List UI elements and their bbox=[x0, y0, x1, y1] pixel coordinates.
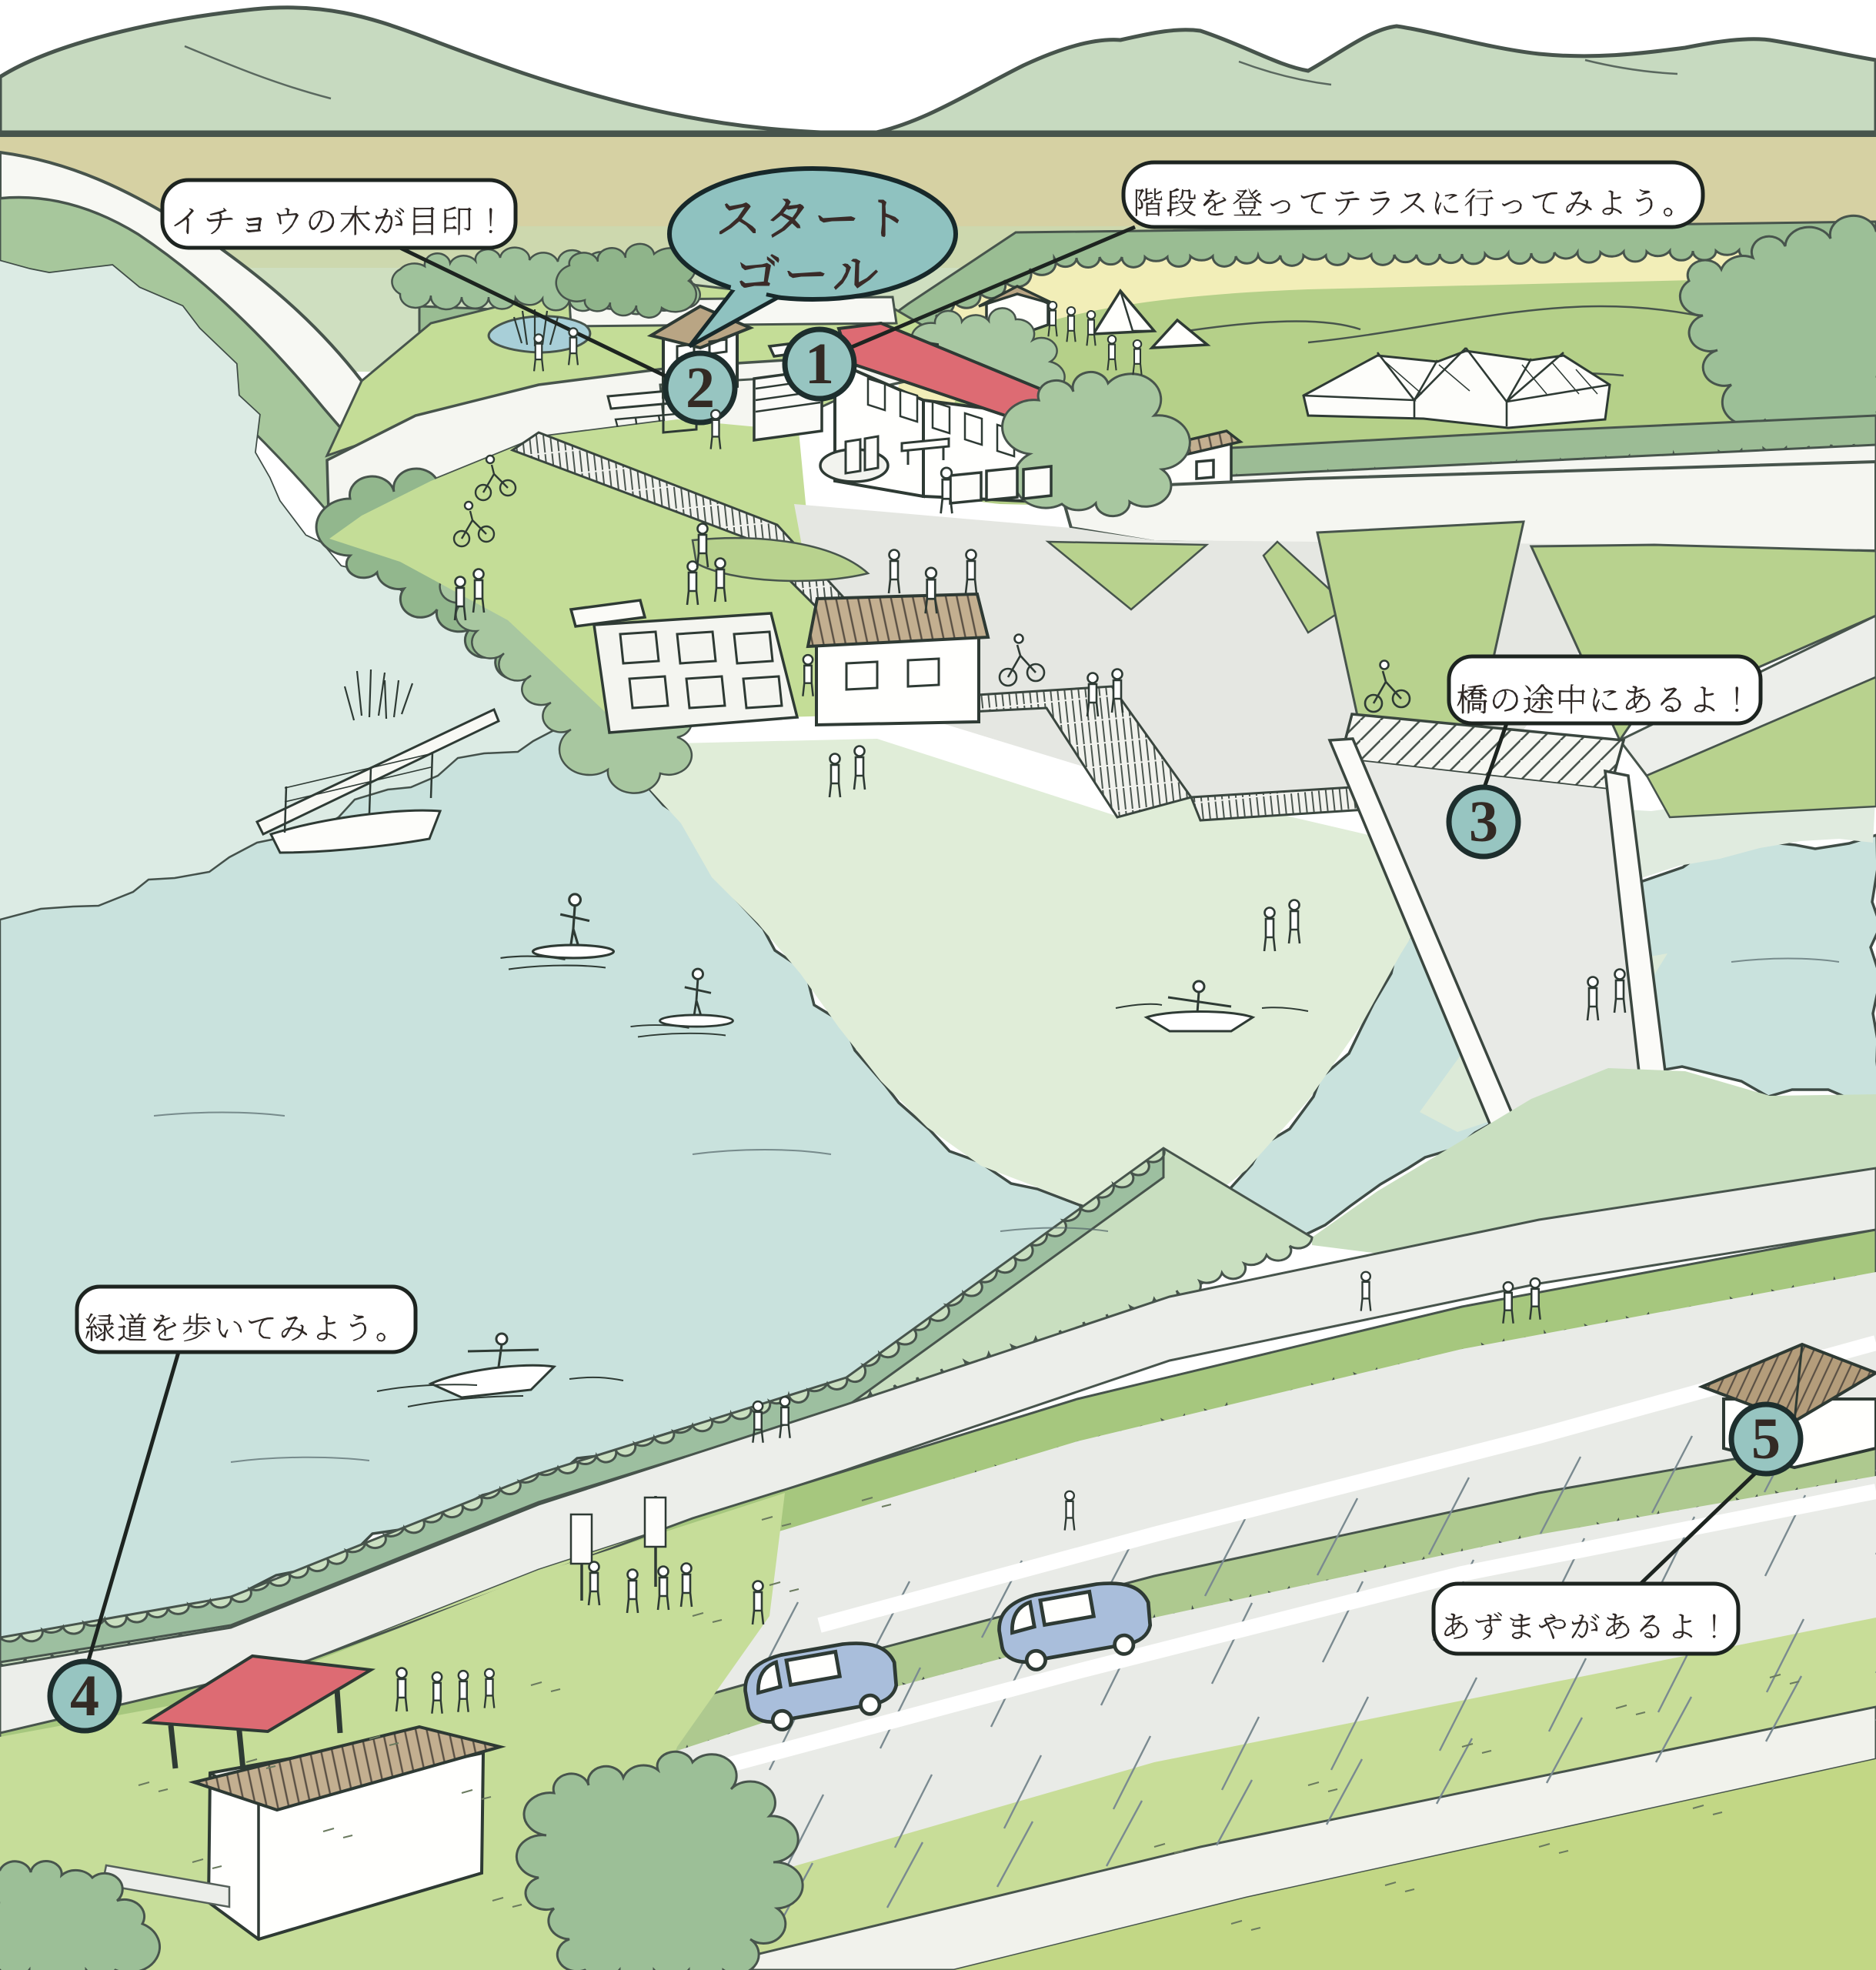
svg-text:2: 2 bbox=[686, 356, 715, 420]
svg-text:1: 1 bbox=[805, 332, 834, 396]
svg-text:4: 4 bbox=[70, 1664, 99, 1728]
svg-text:5: 5 bbox=[1751, 1407, 1781, 1471]
svg-text:3: 3 bbox=[1469, 790, 1498, 854]
